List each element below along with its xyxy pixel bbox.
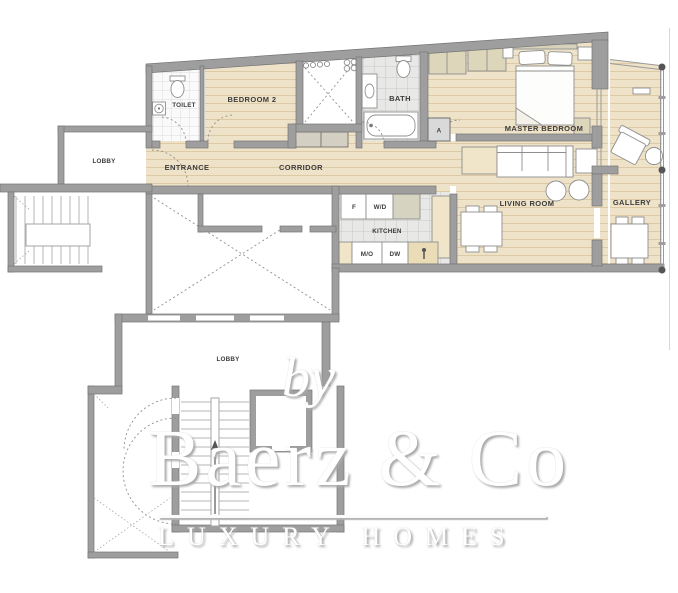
entrance-opening-floor	[146, 148, 152, 186]
toilet-door-floor	[160, 141, 186, 148]
label-toilet: TOILET	[172, 102, 195, 109]
label-kitchen: KITCHEN	[372, 228, 402, 235]
watermark-underline	[158, 515, 546, 518]
kitchen-cabinet-box	[393, 194, 420, 219]
kitchen-counter-end	[339, 242, 352, 264]
nightstand-right	[578, 47, 593, 60]
label-lobby-lower: LOBBY	[216, 356, 240, 363]
dining-table	[461, 206, 502, 252]
label-bedroom2: BEDROOM 2	[227, 95, 276, 104]
void-closet-room	[203, 194, 336, 226]
sofa	[497, 146, 573, 177]
label-bath: BATH	[389, 94, 411, 103]
label-living-room: LIVING ROOM	[500, 199, 555, 208]
label-entrance: ENTRANCE	[165, 163, 210, 172]
pouf-table-1	[546, 181, 566, 201]
void-room	[154, 194, 336, 310]
washbasin-icon	[153, 102, 166, 115]
watermark-by: by	[282, 346, 335, 410]
wall-top-right-corner	[592, 40, 608, 89]
floor-plan-page: TOILET BEDROOM 2 ENTRANCE CORRIDOR BATH …	[0, 0, 678, 593]
gallery-table	[611, 217, 648, 265]
label-dishwasher: DW	[390, 251, 401, 258]
bedroom2-door-floor	[208, 141, 234, 148]
label-shaft-a: A	[437, 128, 442, 135]
watermark-tagline: LUXURY HOMES	[158, 522, 517, 552]
terrace-planter	[633, 88, 650, 94]
master-door-floor	[436, 141, 460, 148]
label-corridor: CORRIDOR	[279, 163, 323, 172]
watermark-brand: Baerz & Co	[148, 414, 570, 505]
nightstand-left	[503, 47, 513, 58]
label-gallery: GALLERY	[613, 198, 651, 207]
label-master-bedroom: MASTER BEDROOM	[505, 124, 584, 133]
label-lobby-upper: LOBBY	[92, 158, 116, 165]
pouf-table-2	[569, 180, 589, 200]
bath-wc-icon	[396, 56, 411, 78]
bath-door-floor	[362, 141, 384, 148]
double-bed	[513, 44, 577, 125]
kitchen-sink-icon	[408, 242, 438, 264]
gallery-round-table	[646, 148, 663, 165]
wc-fixture-icon	[170, 76, 185, 98]
sideboard	[294, 132, 348, 147]
chaise-lounge	[462, 147, 497, 174]
bath-sink-icon	[362, 74, 377, 108]
bathtub-icon	[364, 112, 418, 139]
label-fridge: F	[352, 204, 356, 211]
staircase-upper-left	[14, 196, 90, 264]
label-microwave: M/O	[361, 251, 374, 258]
label-washer-dryer: W/D	[374, 204, 387, 211]
living-window	[594, 208, 600, 238]
